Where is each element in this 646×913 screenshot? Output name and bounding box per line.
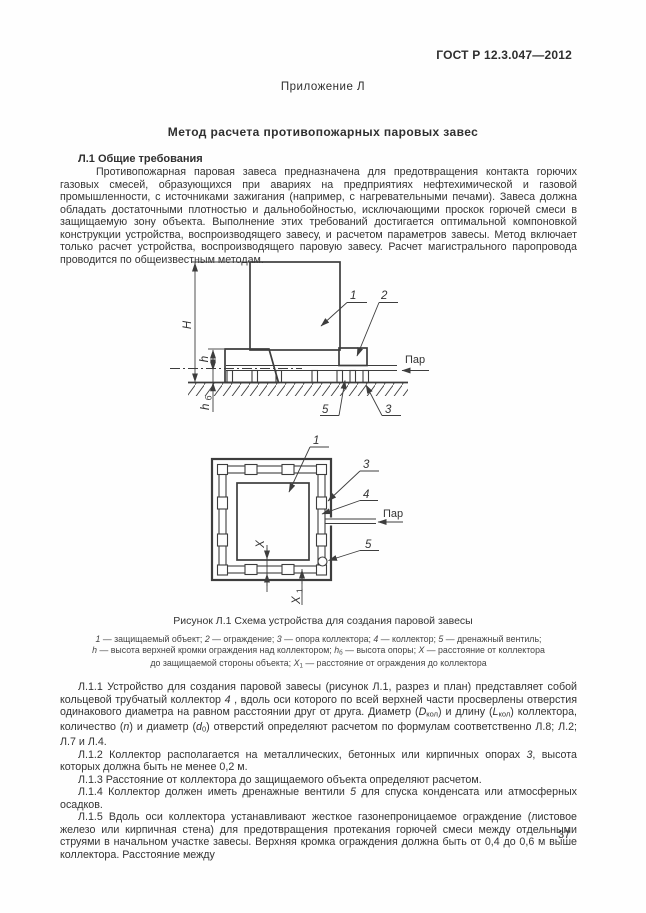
svg-text:2: 2 (380, 290, 388, 302)
svg-text:X 1: X 1 (291, 588, 305, 605)
paragraph: Л.1.2 Коллектор располагается на металли… (60, 749, 577, 774)
fence-right-section (339, 348, 367, 366)
svg-text:1: 1 (313, 435, 319, 447)
standard-number: ГОСТ Р 12.3.047—2012 (436, 48, 572, 62)
document-title: Метод расчета противопожарных паровых за… (0, 125, 646, 139)
legend-line: h — высота верхней кромки ограждения над… (60, 645, 577, 658)
page-number: 37 (558, 829, 570, 841)
steam-label: Пар (405, 354, 425, 366)
intro-paragraph: Противопожарная паровая завеса предназна… (60, 166, 577, 266)
svg-text:5: 5 (365, 539, 372, 551)
appendix-label: Приложение Л (0, 81, 646, 93)
callout-5: 5 (329, 539, 380, 561)
collector-supports (227, 371, 369, 383)
dim-label-X1-base: X (291, 595, 303, 605)
steam-inlet: Пар (402, 354, 429, 371)
svg-text:3: 3 (363, 459, 370, 471)
fence-outline (212, 459, 331, 580)
steam-supply-pipe: Пар (325, 508, 403, 526)
callout-2: 2 (357, 290, 398, 356)
paragraph: Л.1.1 Устройство для создания паровой за… (60, 681, 577, 749)
section-heading: Л.1 Общие требования (78, 153, 203, 165)
drain-valve (318, 557, 327, 566)
dim-label-h6-sub: б (204, 395, 214, 400)
document-page: ГОСТ Р 12.3.047—2012 Приложение Л Метод … (0, 0, 646, 913)
paragraph: Л.1.5 Вдоль оси коллектора устанавливают… (60, 811, 577, 861)
figure-plan-view: Пар 1 3 4 5 X (170, 428, 470, 613)
dim-label-H: H (182, 320, 194, 329)
svg-text:3: 3 (385, 404, 392, 416)
dimension-h: h (199, 349, 224, 368)
collector-support-tabs (218, 465, 327, 576)
callout-1: 1 (321, 290, 367, 326)
figure-caption: Рисунок Л.1 Схема устройства для создани… (0, 615, 646, 627)
protected-object-outline (250, 262, 340, 350)
svg-text:5: 5 (322, 404, 329, 416)
callout-3: 3 (328, 459, 379, 501)
dim-label-X: X (255, 539, 267, 549)
svg-text:1: 1 (350, 290, 356, 302)
paragraph: Л.1.4 Коллектор должен иметь дренажные в… (60, 786, 577, 811)
ground-hatching (188, 383, 408, 396)
paragraph: Л.1.3 Расстояние от коллектора до защища… (60, 774, 577, 787)
dimension-H: H (182, 255, 250, 382)
legend-line: до защищаемой стороны объекта; X1 — расс… (60, 658, 577, 671)
ground-line (188, 383, 408, 397)
dim-label-X1-sub: 1 (295, 588, 305, 593)
svg-text:4: 4 (363, 489, 369, 501)
legend-line: 1 — защищаемый объект; 2 — ограждение; 3… (60, 634, 577, 645)
protected-object-plan (237, 483, 309, 560)
dim-label-h6-base: h (200, 404, 212, 410)
steam-label: Пар (383, 508, 403, 520)
figure-legend: 1 — защищаемый объект; 2 — ограждение; 3… (60, 634, 577, 672)
figure-side-view: H h h б Пар 1 (150, 255, 500, 425)
dim-label-h: h (199, 356, 211, 362)
paragraph: Противопожарная паровая завеса предназна… (60, 166, 577, 266)
body-paragraphs: Л.1.1 Устройство для создания паровой за… (60, 681, 577, 861)
svg-text:h б: h б (200, 395, 214, 410)
